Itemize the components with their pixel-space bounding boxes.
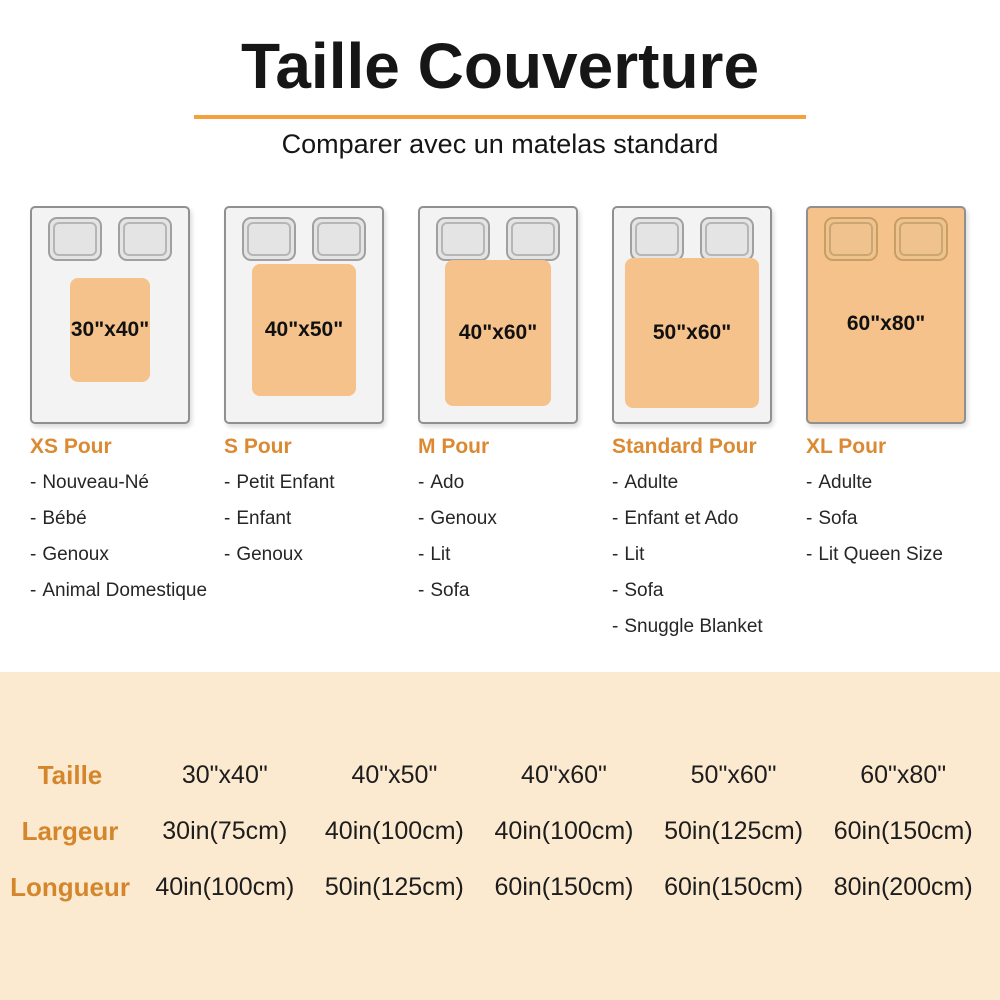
use-label: Petit Enfant <box>236 472 334 493</box>
pillow-icon <box>48 217 102 261</box>
list-item: -Nouveau-Né <box>30 472 190 494</box>
table-cell: 50"x60" <box>649 761 819 790</box>
pillow-icon <box>506 217 560 261</box>
pillow-icon <box>700 217 754 261</box>
list-item: -Adulte <box>806 472 966 494</box>
table-cell: 50in(125cm) <box>310 873 480 902</box>
bed-diagrams-row: 30"x40" 40"x50" 40"x60" 50"x60" <box>0 206 1000 424</box>
dash-bullet: - <box>418 544 424 565</box>
table-cell: 40in(100cm) <box>310 817 480 846</box>
bed-diagram-standard: 50"x60" <box>612 206 772 424</box>
page-title: Taille Couverture <box>0 26 1000 106</box>
pillow-icon <box>630 217 684 261</box>
table-cell: 40"x50" <box>310 761 480 790</box>
use-list-xl: XL Pour -Adulte -Sofa -Lit Queen Size <box>806 435 966 652</box>
category-heading: Standard Pour <box>612 435 772 459</box>
table-cell: 50in(125cm) <box>649 817 819 846</box>
list-item: -Petit Enfant <box>224 472 384 494</box>
use-label: Lit <box>430 544 450 565</box>
row-label: Largeur <box>0 816 140 847</box>
dash-bullet: - <box>224 472 230 493</box>
pillow-icon <box>242 217 296 261</box>
category-heading: M Pour <box>418 435 578 459</box>
dash-bullet: - <box>418 580 424 601</box>
table-cell: 60in(150cm) <box>818 817 988 846</box>
title-underline <box>194 115 806 119</box>
list-item: -Genoux <box>224 544 384 566</box>
list-item: -Sofa <box>418 580 578 602</box>
use-lists-row: XS Pour -Nouveau-Né -Bébé -Genoux -Anima… <box>0 435 1000 652</box>
use-items: -Adulte -Enfant et Ado -Lit -Sofa -Snugg… <box>612 472 772 638</box>
blanket-s: 40"x50" <box>252 264 356 396</box>
dash-bullet: - <box>30 544 36 565</box>
use-label: Sofa <box>818 508 857 529</box>
bed-diagram-xl: 60"x80" <box>806 206 966 424</box>
table-cell: 60"x80" <box>818 761 988 790</box>
use-label: Adulte <box>818 472 872 493</box>
list-item: -Sofa <box>806 508 966 530</box>
dash-bullet: - <box>30 580 36 601</box>
blanket-m: 40"x60" <box>445 260 551 406</box>
blanket-size-label: 40"x50" <box>265 318 343 342</box>
list-item: -Enfant et Ado <box>612 508 772 530</box>
use-label: Lit <box>624 544 644 565</box>
list-item: -Bébé <box>30 508 190 530</box>
dash-bullet: - <box>806 472 812 493</box>
dash-bullet: - <box>224 544 230 565</box>
blanket-size-label: 30"x40" <box>71 318 149 342</box>
table-row-largeur: Largeur 30in(75cm) 40in(100cm) 40in(100c… <box>0 814 1000 848</box>
blanket-xs: 30"x40" <box>70 278 150 382</box>
list-item: -Animal Domestique <box>30 580 190 602</box>
table-cell: 60in(150cm) <box>649 873 819 902</box>
blanket-size-label: 50"x60" <box>653 321 731 345</box>
use-items: -Ado -Genoux -Lit -Sofa <box>418 472 578 602</box>
bed-diagram-s: 40"x50" <box>224 206 384 424</box>
use-label: Nouveau-Né <box>42 472 149 493</box>
table-cell: 60in(150cm) <box>479 873 649 902</box>
dash-bullet: - <box>30 508 36 529</box>
use-label: Sofa <box>624 580 663 601</box>
use-list-s: S Pour -Petit Enfant -Enfant -Genoux <box>224 435 384 652</box>
bed-diagram-m: 40"x60" <box>418 206 578 424</box>
category-heading: S Pour <box>224 435 384 459</box>
size-comparison-table: Taille 30"x40" 40"x50" 40"x60" 50"x60" 6… <box>0 672 1000 1000</box>
use-label: Enfant <box>236 508 291 529</box>
use-label: Snuggle Blanket <box>624 616 762 637</box>
subtitle: Comparer avec un matelas standard <box>0 128 1000 160</box>
table-cell: 30"x40" <box>140 761 310 790</box>
blanket-size-infographic: Taille Couverture Comparer avec un matel… <box>0 0 1000 1000</box>
pillow-icon <box>312 217 366 261</box>
pillow-icon <box>436 217 490 261</box>
list-item: -Sofa <box>612 580 772 602</box>
blanket-standard: 50"x60" <box>625 258 759 408</box>
use-items: -Adulte -Sofa -Lit Queen Size <box>806 472 966 566</box>
use-list-standard: Standard Pour -Adulte -Enfant et Ado -Li… <box>612 435 772 652</box>
blanket-size-label: 60"x80" <box>847 312 925 336</box>
blanket-xl: 60"x80" <box>808 208 964 422</box>
use-label: Ado <box>430 472 464 493</box>
list-item: -Lit Queen Size <box>806 544 966 566</box>
list-item: -Enfant <box>224 508 384 530</box>
table-cell: 80in(200cm) <box>818 873 988 902</box>
use-label: Bébé <box>42 508 86 529</box>
dash-bullet: - <box>612 616 618 637</box>
list-item: -Ado <box>418 472 578 494</box>
use-label: Sofa <box>430 580 469 601</box>
use-items: -Petit Enfant -Enfant -Genoux <box>224 472 384 566</box>
list-item: -Lit <box>612 544 772 566</box>
table-cell: 40"x60" <box>479 761 649 790</box>
table-cell: 40in(100cm) <box>140 873 310 902</box>
dash-bullet: - <box>612 472 618 493</box>
table-cell: 30in(75cm) <box>140 817 310 846</box>
dash-bullet: - <box>418 472 424 493</box>
list-item: -Snuggle Blanket <box>612 616 772 638</box>
use-label: Enfant et Ado <box>624 508 738 529</box>
dash-bullet: - <box>612 580 618 601</box>
use-label: Adulte <box>624 472 678 493</box>
use-label: Animal Domestique <box>42 580 207 601</box>
dash-bullet: - <box>224 508 230 529</box>
dash-bullet: - <box>612 508 618 529</box>
list-item: -Adulte <box>612 472 772 494</box>
category-heading: XS Pour <box>30 435 190 459</box>
use-list-xs: XS Pour -Nouveau-Né -Bébé -Genoux -Anima… <box>30 435 190 652</box>
blanket-size-label: 40"x60" <box>459 321 537 345</box>
dash-bullet: - <box>30 472 36 493</box>
use-items: -Nouveau-Né -Bébé -Genoux -Animal Domest… <box>30 472 190 602</box>
table-row-taille: Taille 30"x40" 40"x50" 40"x60" 50"x60" 6… <box>0 758 1000 792</box>
row-label: Longueur <box>0 872 140 903</box>
dash-bullet: - <box>806 544 812 565</box>
use-label: Genoux <box>42 544 109 565</box>
list-item: -Lit <box>418 544 578 566</box>
use-label: Genoux <box>236 544 303 565</box>
use-label: Genoux <box>430 508 497 529</box>
header: Taille Couverture Comparer avec un matel… <box>0 0 1000 160</box>
use-label: Lit Queen Size <box>818 544 943 565</box>
use-list-m: M Pour -Ado -Genoux -Lit -Sofa <box>418 435 578 652</box>
category-heading: XL Pour <box>806 435 966 459</box>
table-row-longueur: Longueur 40in(100cm) 50in(125cm) 60in(15… <box>0 870 1000 904</box>
list-item: -Genoux <box>30 544 190 566</box>
bed-diagram-xs: 30"x40" <box>30 206 190 424</box>
row-label: Taille <box>0 760 140 791</box>
dash-bullet: - <box>612 544 618 565</box>
dash-bullet: - <box>806 508 812 529</box>
pillow-icon <box>118 217 172 261</box>
list-item: -Genoux <box>418 508 578 530</box>
dash-bullet: - <box>418 508 424 529</box>
table-cell: 40in(100cm) <box>479 817 649 846</box>
